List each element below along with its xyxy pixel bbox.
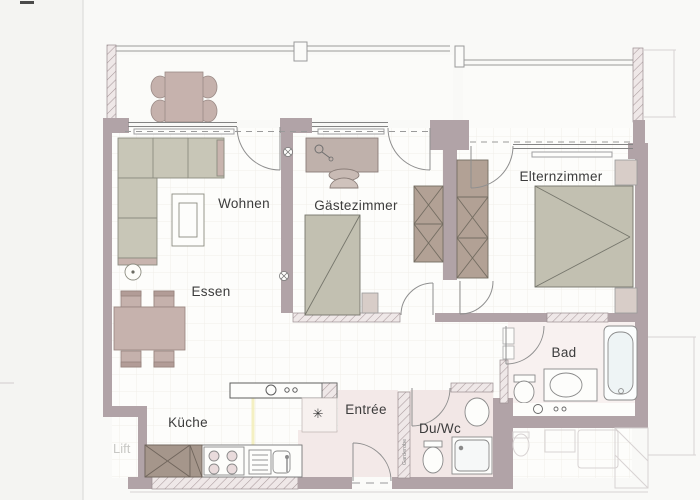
wall-pillar-nw — [103, 118, 129, 133]
balcony-wall-left — [107, 45, 116, 128]
desk — [306, 138, 378, 172]
fridge-icon: ✳ — [313, 406, 324, 421]
railing-post-2 — [455, 46, 464, 67]
bathtub-inner — [608, 332, 633, 394]
burner — [227, 451, 237, 461]
burner — [209, 464, 219, 474]
sofa-top-arm — [118, 138, 224, 178]
nightstand — [615, 160, 637, 185]
dining-chair-back — [121, 362, 141, 367]
wardrobe-gaeste — [414, 186, 443, 262]
wall-bad-bottom — [495, 416, 648, 428]
vanity-basin — [550, 373, 582, 397]
window-sill-eltern — [532, 152, 612, 157]
dining-chair-back — [154, 362, 174, 367]
label-bad: Bad — [552, 345, 577, 360]
label-entree: Entrée — [345, 402, 387, 417]
wall-left — [103, 118, 112, 414]
wall-wohnen-gaeste — [281, 133, 293, 313]
kitchen-island-end — [322, 383, 337, 398]
kitchen-sink — [249, 450, 290, 474]
wall-pillar-n1 — [280, 118, 312, 133]
floorplan-canvas: ✳ — [0, 0, 700, 500]
wardrobe-body — [457, 160, 488, 278]
scan-smudge — [0, 382, 14, 384]
wall-duwc-top — [451, 383, 493, 392]
wall-ne-step — [633, 120, 645, 145]
sofa-end-cap — [217, 140, 224, 176]
stove — [204, 447, 244, 475]
label-wohnen: Wohnen — [218, 196, 270, 211]
scan-mark — [20, 1, 34, 4]
duwc-toilet — [423, 447, 443, 473]
burner — [209, 451, 219, 461]
duwc-sink — [465, 398, 489, 426]
coffee-table-inner — [179, 203, 197, 237]
label-elternzimmer: Elternzimmer — [519, 169, 602, 184]
wall-pillar-ne — [628, 143, 640, 159]
shower-inner — [455, 440, 489, 471]
double-bed — [535, 186, 633, 287]
niche-band — [513, 403, 635, 416]
railing-post — [294, 42, 307, 61]
dining-chair-back — [154, 291, 174, 296]
duwc-cistern — [424, 441, 442, 447]
label-kueche: Küche — [168, 415, 208, 430]
wall-eltern-bottom-1 — [457, 313, 547, 322]
balcony-table-set — [151, 72, 217, 122]
toilet-bowl — [514, 381, 534, 403]
wall-bad-top — [547, 313, 608, 322]
label-lift: Lift — [113, 441, 131, 456]
wall-bottom-window-sill — [152, 477, 298, 489]
floor-lamp-dot — [131, 270, 134, 273]
shower-drain — [459, 446, 463, 450]
dining-chair-back — [121, 291, 141, 296]
wall-eltern-bottom-2 — [608, 313, 648, 322]
bad-south-niche — [513, 403, 635, 416]
nightstand — [615, 288, 637, 313]
label-essen: Essen — [191, 284, 230, 299]
wall-corner-se — [493, 398, 513, 489]
label-garderobe: Garderobe — [402, 439, 408, 465]
wall-bottom-1 — [128, 477, 154, 489]
dining-table — [114, 307, 185, 350]
wall-pillar-n2 — [430, 120, 469, 150]
kitchen-island — [230, 383, 337, 398]
sink-tap-head — [286, 456, 289, 459]
sofa-end-cap — [118, 258, 157, 265]
floor-lamp — [125, 264, 141, 280]
label-duwc: Du/Wc — [419, 421, 461, 436]
wall-bad-west — [500, 360, 508, 403]
kitchen-cabinet-x — [145, 445, 202, 477]
bad-shelf — [503, 328, 514, 344]
outdoor-table — [165, 72, 203, 122]
coffee-table — [172, 194, 204, 246]
nightstand — [362, 293, 378, 313]
wardrobe-eltern — [457, 160, 488, 278]
label-gaestezimmer: Gästezimmer — [314, 198, 398, 213]
wall-gaeste-eltern — [443, 148, 457, 280]
burner — [227, 464, 237, 474]
bad-shelf — [503, 346, 514, 359]
wall-bottom-2 — [298, 477, 352, 489]
kitchen-floor-tint — [298, 430, 338, 477]
balcony-wall-right — [633, 48, 643, 122]
